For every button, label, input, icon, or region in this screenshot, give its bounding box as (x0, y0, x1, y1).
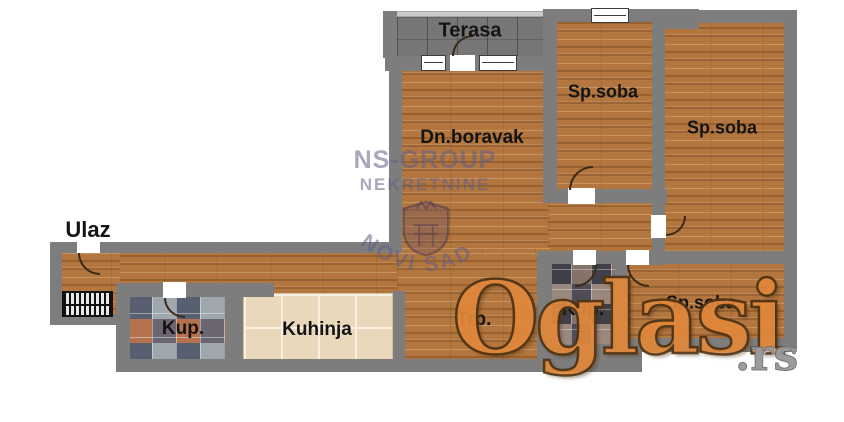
wall-segment (116, 283, 130, 372)
agency-name-line1: NS-GROUP (345, 146, 505, 175)
wall-segment (546, 189, 667, 203)
terrace-railing (385, 11, 546, 17)
wall-segment (655, 10, 797, 23)
wall-segment (383, 11, 397, 58)
terrace-door-opening (450, 55, 475, 71)
bathroom-left-door-opening (163, 282, 186, 298)
room-label-dnboravak: Dn.boravak (420, 127, 523, 149)
bedroom-right-door-opening (651, 215, 666, 238)
bedroom-top-door-opening (568, 188, 595, 204)
doormat (62, 291, 113, 317)
room-label-terasa: Terasa (438, 20, 501, 43)
wall-segment (393, 291, 405, 365)
portal-watermark: Oglasi (452, 268, 782, 368)
terrace-window-symbol (421, 55, 446, 71)
room-label-spsoba-right: Sp.soba (687, 118, 757, 139)
room-label-kuhinja: Kuhinja (282, 319, 352, 341)
wall-segment (225, 283, 243, 372)
wall-segment (50, 242, 62, 325)
floor-plan-image: NS-GROUP NEKRETNINE NOVI SAD Terasa Dn.b… (0, 0, 844, 422)
bedroom-top-floor (548, 15, 665, 195)
room-label-spsoba-top: Sp.soba (568, 82, 638, 103)
agency-name-line2: NEKRETNINE (345, 175, 505, 195)
room-label-kup-left: Kup. (162, 318, 204, 340)
wall-segment (116, 283, 274, 297)
entrance-door-opening (77, 242, 100, 253)
wall-segment (543, 9, 557, 203)
room-label-ulaz: Ulaz (65, 217, 110, 243)
bedroom-top-window-symbol (591, 8, 629, 23)
terrace-window-symbol (479, 55, 517, 71)
wall-segment (784, 15, 797, 352)
portal-watermark-tld: .rs (735, 334, 798, 378)
